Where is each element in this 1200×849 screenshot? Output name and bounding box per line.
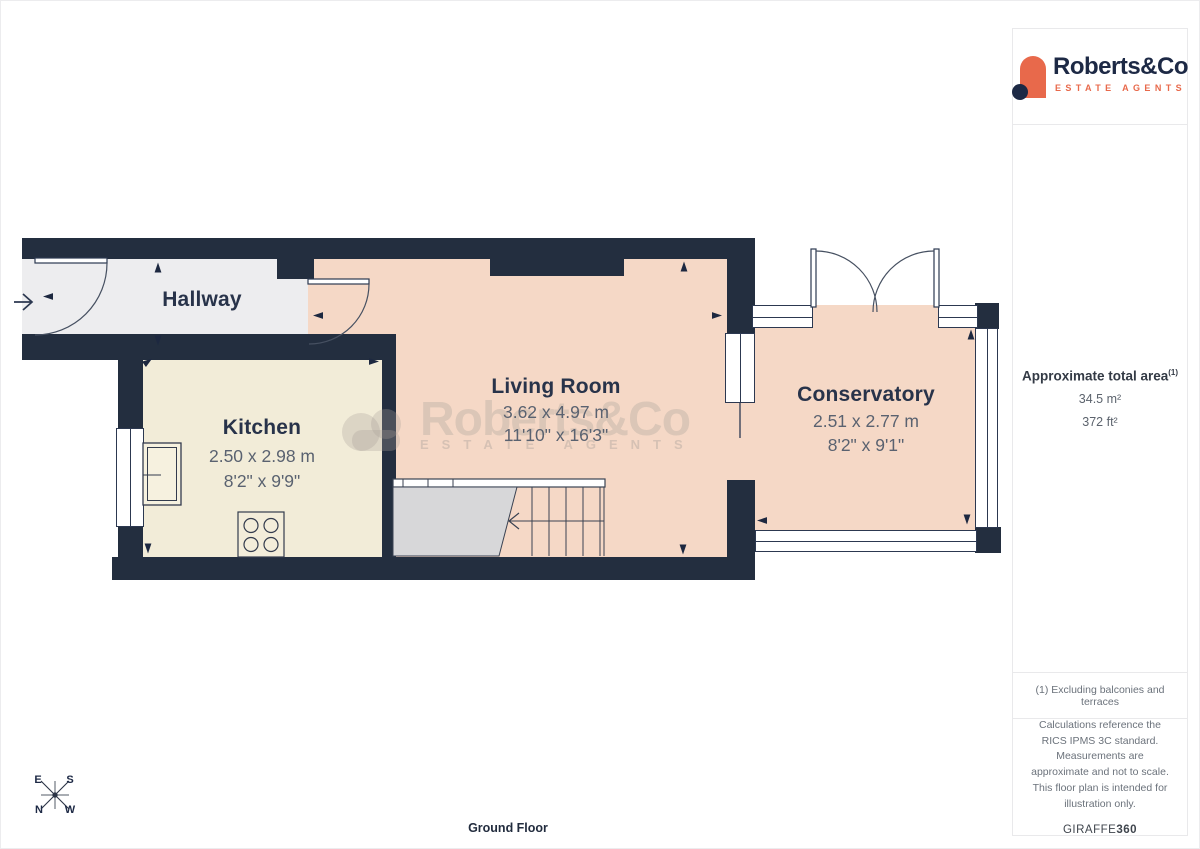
wall bbox=[277, 238, 314, 279]
footnote-text: (1) Excluding balconies and terraces bbox=[1013, 684, 1187, 708]
conservatory-glass-top-left bbox=[752, 305, 813, 328]
room-name: Kitchen bbox=[209, 416, 315, 440]
agency-name: Roberts&Co bbox=[1053, 54, 1188, 80]
wall bbox=[22, 238, 755, 259]
area-metric: 34.5 m² bbox=[1079, 392, 1121, 406]
sidebar-footnote-box: (1) Excluding balconies and terraces bbox=[1012, 672, 1188, 719]
room-label-conservatory: Conservatory 2.51 x 2.77 m 8'2" x 9'1" bbox=[797, 383, 935, 457]
floorplan-canvas: Roberts&Co ESTATE AGENTS Hallway Kitchen… bbox=[0, 0, 1010, 849]
compass-east: E bbox=[31, 774, 45, 786]
room-name: Living Room bbox=[491, 375, 620, 399]
room-dim-imperial: 11'10" x 16'3" bbox=[491, 424, 620, 447]
room-label-kitchen: Kitchen 2.50 x 2.98 m 8'2" x 9'9" bbox=[209, 416, 315, 494]
room-name: Conservatory bbox=[797, 383, 935, 407]
agency-tagline: ESTATE AGENTS bbox=[1053, 83, 1188, 93]
sidebar-logo-box: Roberts&Co ESTATE AGENTS bbox=[1012, 28, 1188, 125]
room-dim-metric: 3.62 x 4.97 m bbox=[491, 401, 620, 424]
conservatory-glass-bottom bbox=[755, 530, 977, 552]
conservatory-glass-top-right bbox=[938, 305, 978, 328]
wall-chimney bbox=[490, 258, 624, 276]
room-dim-metric: 2.50 x 2.98 m bbox=[209, 444, 315, 469]
room-dim-imperial: 8'2" x 9'9" bbox=[209, 469, 315, 494]
agency-logo: Roberts&Co ESTATE AGENTS bbox=[1012, 54, 1188, 100]
disclaimer-text: Calculations reference the RICS IPMS 3C … bbox=[1013, 718, 1187, 813]
area-title: Approximate total area(1) bbox=[1022, 368, 1178, 384]
conservatory-glass-right bbox=[975, 328, 998, 528]
room-label-living-room: Living Room 3.62 x 4.97 m 11'10" x 16'3" bbox=[491, 375, 620, 447]
compass-west: W bbox=[63, 804, 77, 816]
sidebar-area-box: Approximate total area(1) 34.5 m² 372 ft… bbox=[1012, 124, 1188, 673]
cloud-icon bbox=[338, 396, 410, 452]
room-dim-imperial: 8'2" x 9'1" bbox=[797, 433, 935, 457]
sidebar-disclaimer-box: Calculations reference the RICS IPMS 3C … bbox=[1012, 718, 1188, 836]
living-conservatory-window bbox=[725, 333, 755, 403]
wall bbox=[727, 238, 755, 333]
area-imperial: 372 ft² bbox=[1082, 415, 1117, 429]
french-door-leaf bbox=[811, 249, 816, 307]
wall bbox=[22, 334, 396, 360]
compass-south: S bbox=[63, 774, 77, 786]
wall-conservatory-post bbox=[975, 303, 999, 329]
wall bbox=[112, 557, 755, 580]
door-arc-icon bbox=[873, 251, 934, 312]
door-arc-icon bbox=[816, 251, 877, 312]
room-label-hallway: Hallway bbox=[162, 288, 242, 312]
wall bbox=[118, 334, 143, 428]
compass-north: N bbox=[32, 804, 46, 816]
room-name: Hallway bbox=[162, 288, 242, 312]
kitchen-window bbox=[116, 428, 144, 527]
room-dim-metric: 2.51 x 2.77 m bbox=[797, 409, 935, 433]
wall-conservatory-post bbox=[975, 527, 1001, 553]
logo-arch-icon bbox=[1012, 54, 1046, 100]
area-footnote-ref: (1) bbox=[1168, 368, 1178, 377]
french-door-leaf bbox=[934, 249, 939, 307]
giraffe360-brand: GIRAFFE360 bbox=[1063, 824, 1137, 836]
wall bbox=[727, 480, 755, 557]
floor-title: Ground Floor bbox=[468, 821, 548, 835]
